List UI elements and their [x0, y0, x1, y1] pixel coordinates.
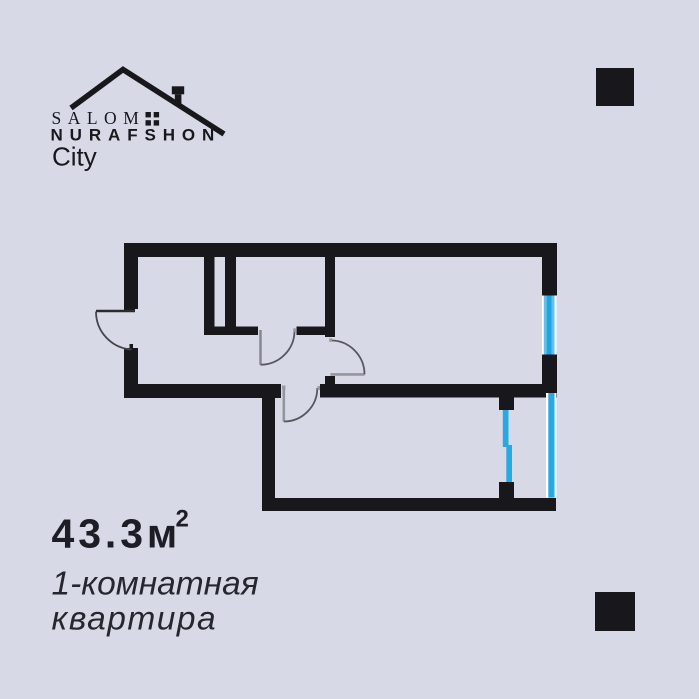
svg-text:1-комнатная: 1-комнатная: [52, 566, 259, 603]
svg-text:квартира: квартира: [52, 601, 218, 638]
svg-text:43.3м: 43.3м: [52, 511, 182, 557]
svg-text:2: 2: [176, 506, 189, 533]
svg-text:City: City: [52, 142, 97, 172]
